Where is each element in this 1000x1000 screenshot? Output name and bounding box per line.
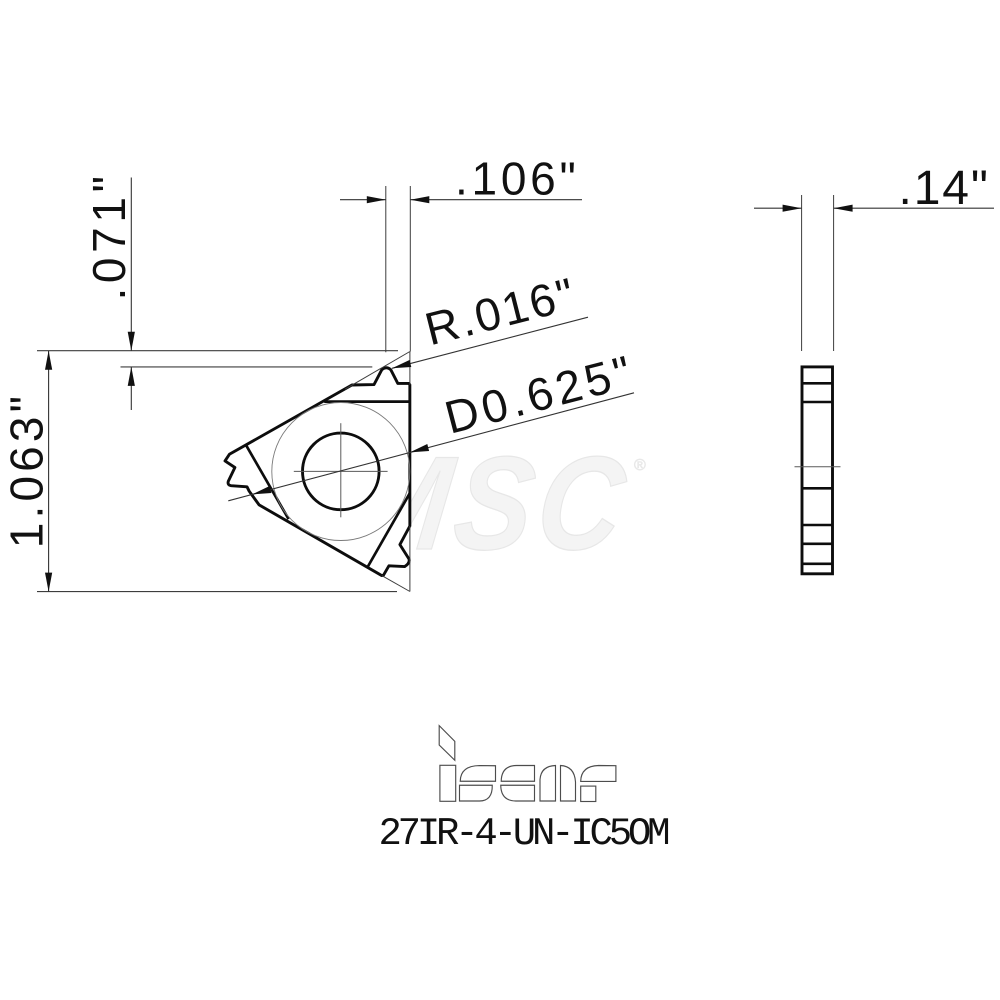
svg-text:®: ® <box>634 457 646 474</box>
svg-text:27IR-4-UN-IC5OM: 27IR-4-UN-IC5OM <box>379 812 671 856</box>
svg-text:1.063": 1.063" <box>0 396 52 548</box>
